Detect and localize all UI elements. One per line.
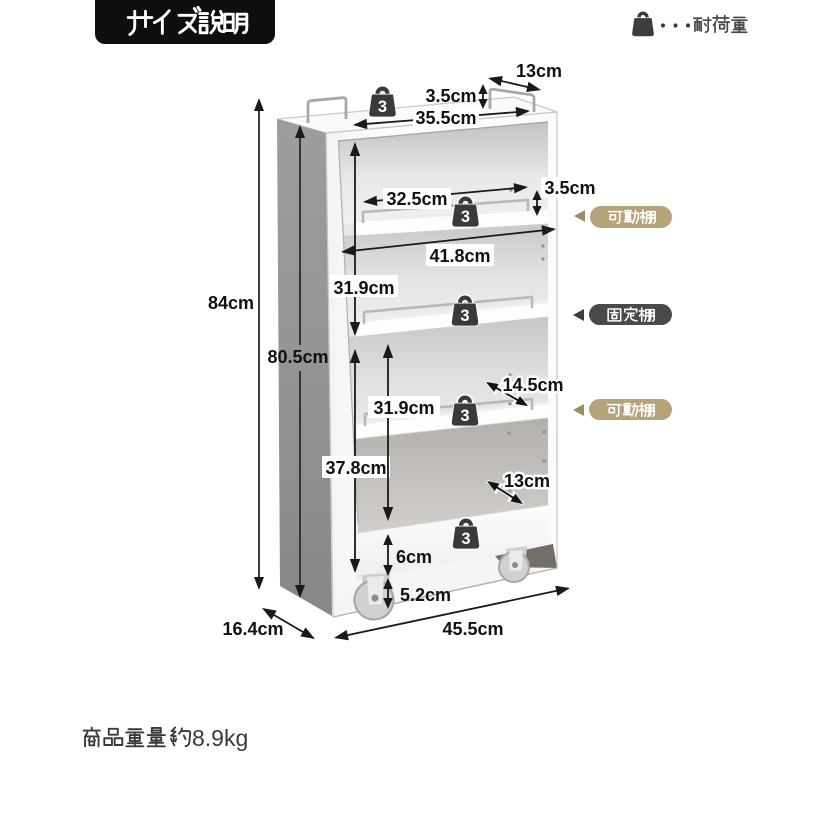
svg-text:84cm: 84cm: [208, 293, 254, 313]
svg-text:3.5cm: 3.5cm: [425, 86, 476, 106]
svg-text:32.5cm: 32.5cm: [386, 189, 447, 209]
svg-text:14.5cm: 14.5cm: [502, 375, 563, 395]
svg-text:13cm: 13cm: [516, 61, 562, 81]
svg-text:3: 3: [460, 407, 469, 425]
svg-text:80.5cm: 80.5cm: [267, 347, 328, 367]
svg-text:37.8cm: 37.8cm: [325, 458, 386, 478]
svg-text:3: 3: [461, 530, 470, 548]
svg-text:3.5cm: 3.5cm: [544, 178, 595, 198]
svg-text:3: 3: [460, 307, 469, 325]
svg-text:31.9cm: 31.9cm: [333, 278, 394, 298]
svg-text:5.2cm: 5.2cm: [400, 585, 451, 605]
svg-text:8.9kg: 8.9kg: [192, 725, 248, 751]
svg-text:13cm: 13cm: [504, 471, 550, 491]
svg-text:3: 3: [378, 98, 387, 116]
svg-text:31.9cm: 31.9cm: [373, 398, 434, 418]
svg-text:35.5cm: 35.5cm: [415, 108, 476, 128]
svg-text:6cm: 6cm: [396, 547, 432, 567]
svg-text:41.8cm: 41.8cm: [429, 246, 490, 266]
svg-text:45.5cm: 45.5cm: [442, 619, 503, 639]
svg-text:16.4cm: 16.4cm: [222, 619, 283, 639]
svg-text:3: 3: [461, 208, 470, 226]
